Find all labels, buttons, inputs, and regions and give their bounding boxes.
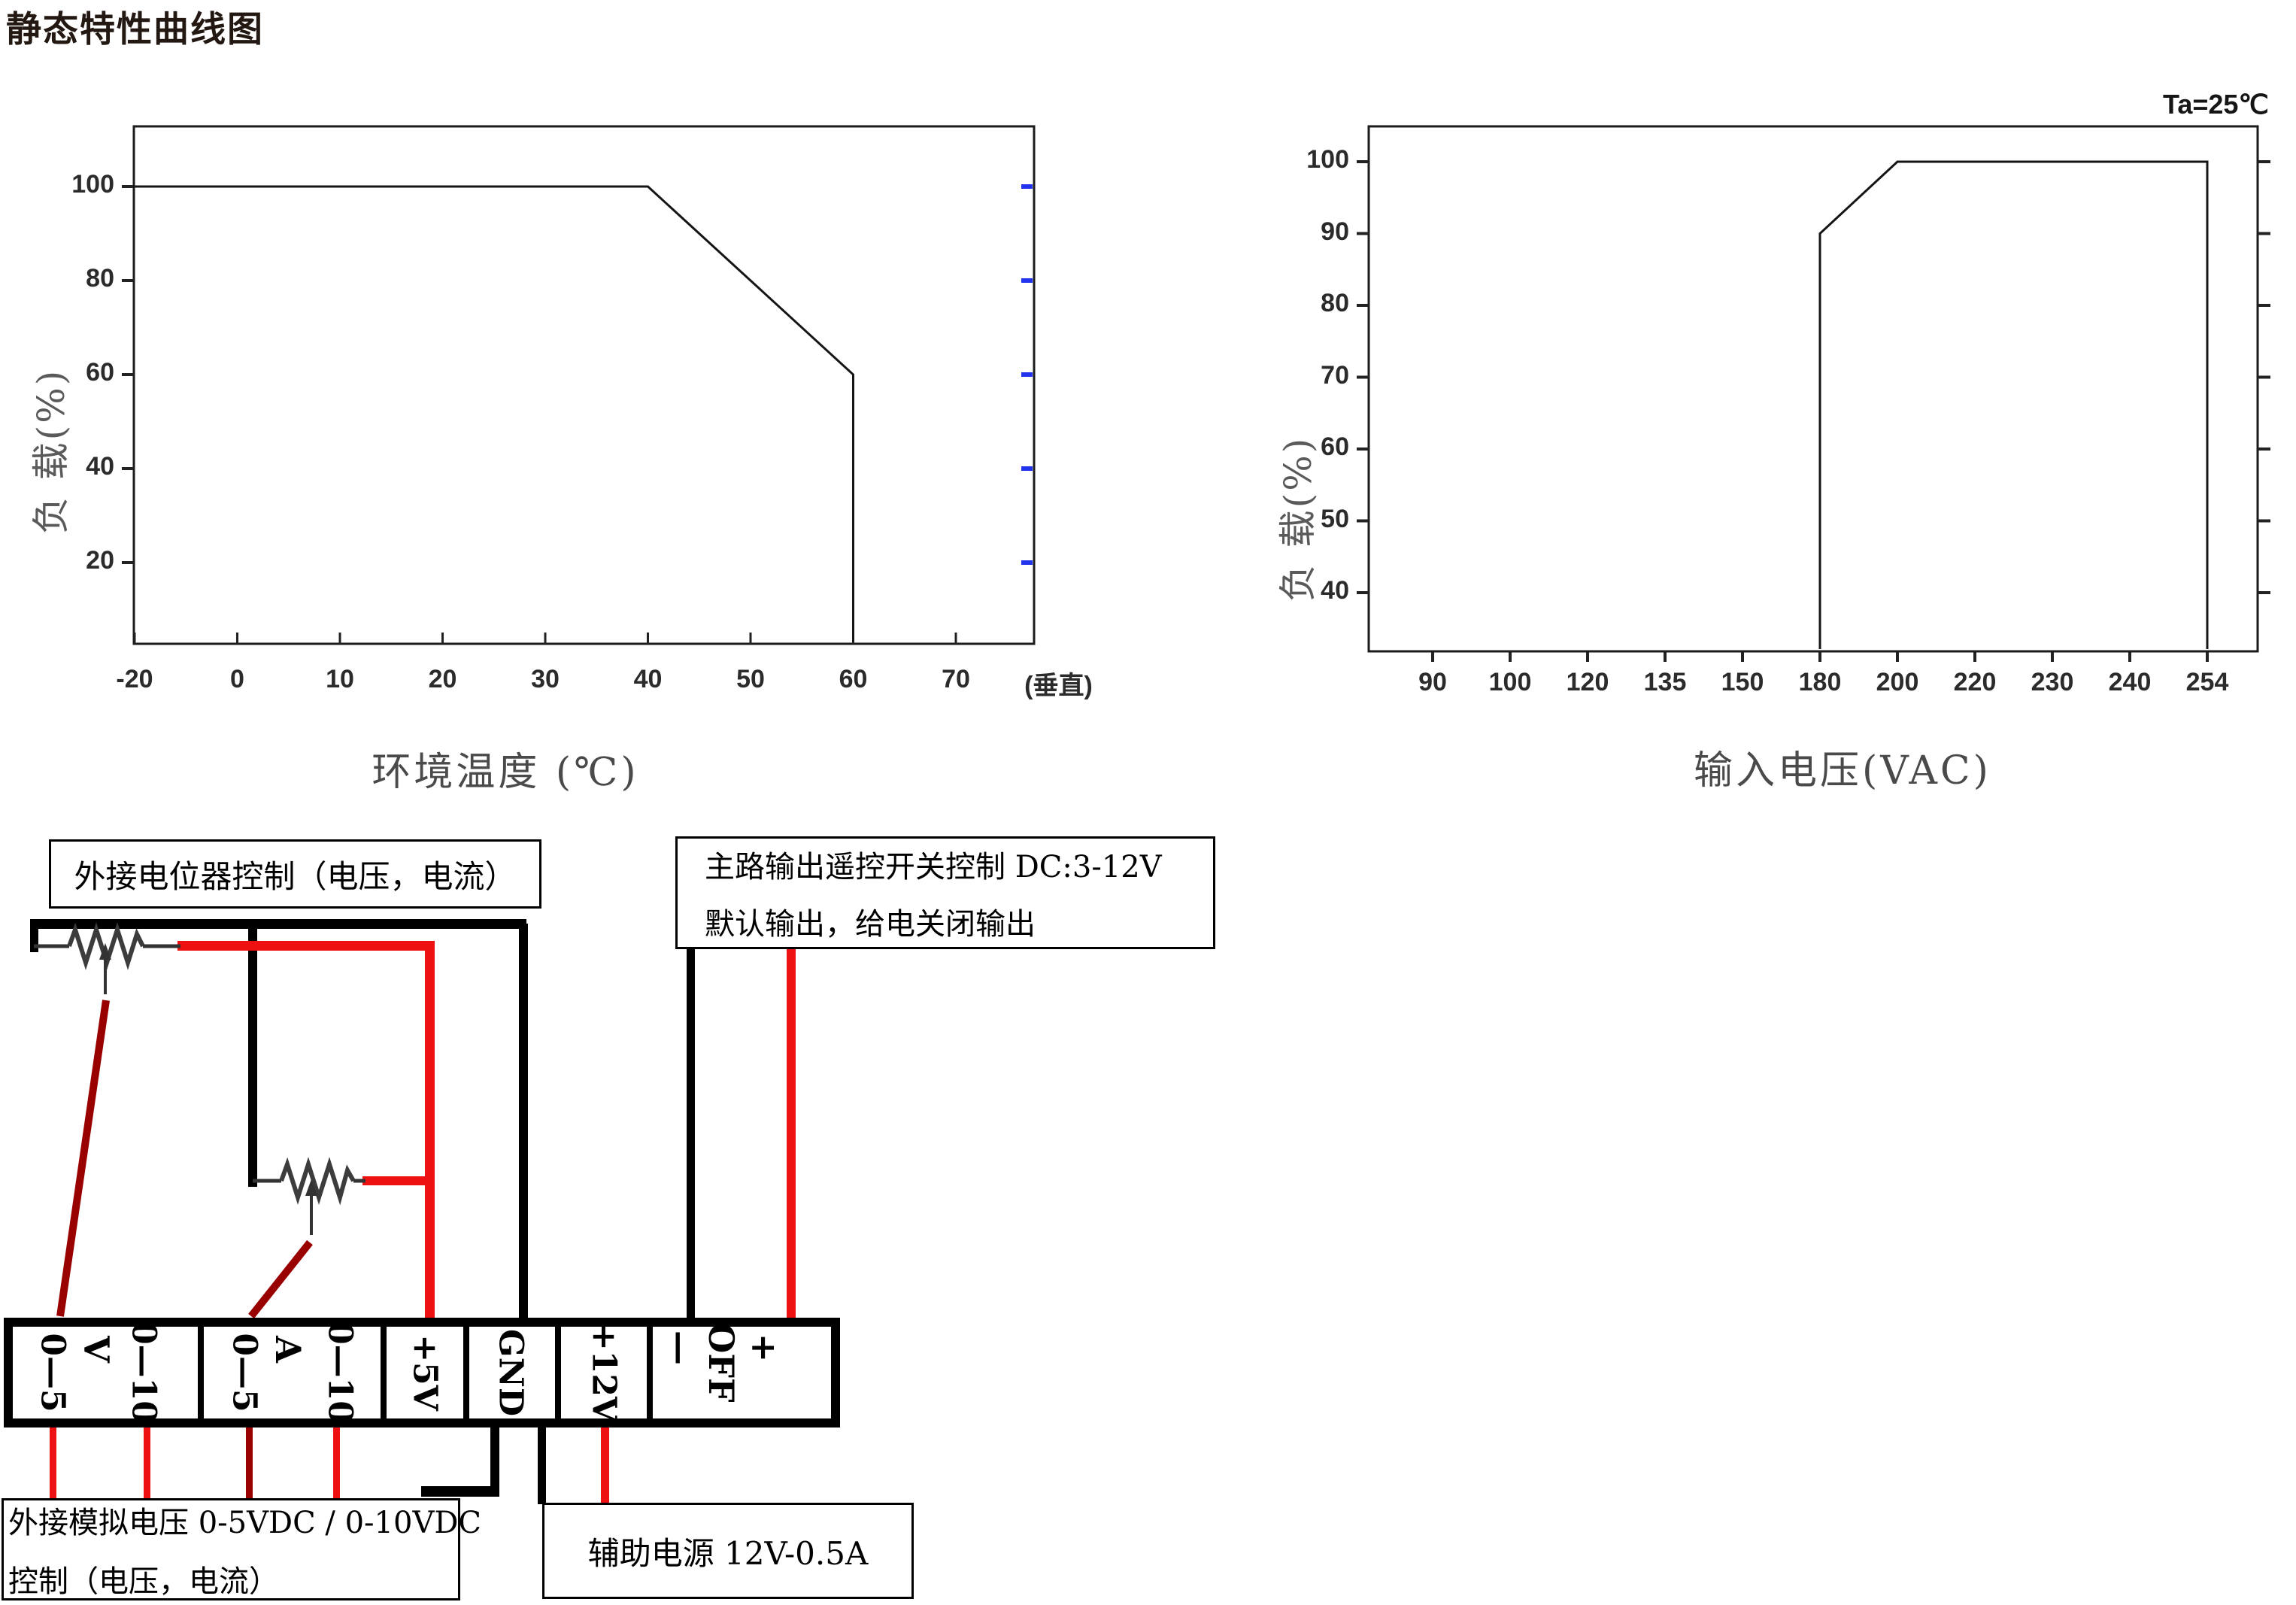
- y-tick-label: 80: [50, 264, 114, 293]
- callout-potentiometer-control: 外接电位器控制（电压，电流）: [49, 839, 541, 909]
- terminal-divider: [463, 1327, 469, 1418]
- terminal-group-label-a: A: [268, 1336, 308, 1363]
- y-tick-label: 90: [1284, 217, 1349, 247]
- gnd-elbow-stub: [421, 1486, 499, 1497]
- callout-analog-line2: 控制（电压，电流）: [8, 1557, 458, 1600]
- pot2-drop-wire: [248, 924, 257, 1187]
- x-tick-label: 0: [185, 665, 290, 694]
- chart2-x-axis-title: 输入电压(VAC): [1694, 739, 1991, 795]
- terminal-plus5v: +5V: [406, 1334, 444, 1411]
- terminal-group-label-v: V: [76, 1336, 117, 1363]
- terminal-group-voltage: 0—5 V 0—10: [13, 1327, 198, 1418]
- gnd-top-wire: [519, 924, 528, 1325]
- derating-curve-load-vs-ambient-temperature: [135, 187, 854, 642]
- terminal-0-5-current: 0—5: [226, 1333, 264, 1412]
- gnd-bottom-wire: [490, 1426, 499, 1495]
- x-tick-label: 40: [596, 665, 701, 694]
- pot2-red-wire: [362, 1176, 432, 1185]
- gnd-to-aux-wire: [538, 1426, 546, 1504]
- callout-aux-power: 辅助电源 12V-0.5A: [542, 1503, 914, 1599]
- callout-analog-voltage-control: 外接模拟电压 0-5VDC / 0-10VDC 控制（电压，电流）: [2, 1498, 460, 1600]
- datasheet-figure-page: 静态特性曲线图 环境温度 (℃) 负 载(%) 输入电压(VAC) 负 载(%)…: [0, 0, 2296, 1605]
- red-bus-to-5v-wire: [425, 941, 435, 1325]
- terminal-group-5v: +5V: [387, 1327, 463, 1418]
- x-tick-label: 60: [801, 665, 906, 694]
- analog-wire-0-5v: [50, 1426, 56, 1501]
- callout-analog-line1: 外接模拟电压 0-5VDC / 0-10VDC: [8, 1498, 458, 1542]
- page-title: 静态特性曲线图: [6, 0, 264, 52]
- terminal-divider: [647, 1327, 653, 1418]
- pot2-resistor-zigzag: [281, 1164, 353, 1197]
- analog-wire-0-5a: [246, 1426, 253, 1501]
- analog-wire-0-10a: [333, 1426, 340, 1501]
- terminal-0-5-voltage: 0—5: [34, 1333, 72, 1412]
- plot-border: [134, 126, 1034, 644]
- y-tick-label: 60: [50, 358, 114, 387]
- terminal-plus: +: [744, 1333, 784, 1363]
- y-tick-label: 70: [1284, 361, 1349, 390]
- remote-minus-wire: [687, 946, 695, 1322]
- terminal-gnd: GND: [492, 1329, 530, 1416]
- chart1-x-axis-title: 环境温度 (℃): [372, 740, 638, 796]
- x-tick-label: -20: [82, 665, 187, 694]
- x-tick-label: 70: [903, 665, 1008, 694]
- x-tick-label: 50: [698, 665, 803, 694]
- chart1-y-axis-title: 负 载(%): [21, 369, 75, 534]
- terminal-0-10-voltage: 0—10: [125, 1321, 163, 1424]
- callout-remote-switch-control: 主路输出遥控开关控制 DC:3-12V 默认输出，给电关闭输出: [675, 836, 1215, 949]
- x-tick-label: 254: [2155, 668, 2260, 697]
- terminal-divider: [198, 1327, 204, 1418]
- terminal-plus12v: +12V: [585, 1323, 623, 1422]
- analog-wire-0-10v: [144, 1426, 150, 1501]
- y-tick-label: 100: [1284, 145, 1349, 174]
- y-tick-label: 40: [50, 452, 114, 481]
- terminal-divider: [381, 1327, 387, 1418]
- y-tick-label: 40: [1284, 576, 1349, 605]
- callout-remote-line2: 默认输出，给电关闭输出: [705, 900, 1213, 943]
- callout-potentiometer-text: 外接电位器控制（电压，电流）: [74, 851, 516, 897]
- aux-12v-wire: [601, 1426, 609, 1504]
- derating-curve-load-vs-input-voltage: [1820, 162, 2207, 649]
- callout-remote-line1: 主路输出遥控开关控制 DC:3-12V: [705, 842, 1213, 886]
- y-tick-label: 60: [1284, 432, 1349, 462]
- terminal-group-remote-off: — OFF +: [653, 1327, 831, 1418]
- y-tick-label: 80: [1284, 289, 1349, 318]
- pot-bus-wire: [30, 919, 526, 929]
- terminal-block: 0—5 V 0—10 0—5 A 0—10 +5V GND +12V — OFF…: [4, 1318, 840, 1428]
- terminal-minus: —: [660, 1330, 701, 1365]
- y-tick-label: 20: [50, 546, 114, 575]
- terminal-group-current: 0—5 A 0—10: [204, 1327, 381, 1418]
- y-tick-label: 100: [50, 170, 114, 199]
- plot-border: [1369, 126, 2258, 651]
- terminal-off-label: OFF: [701, 1323, 742, 1402]
- x-tick-label: 10: [287, 665, 393, 694]
- x-tick-label: 30: [493, 665, 598, 694]
- terminal-divider: [555, 1327, 561, 1418]
- x-tick-label: 20: [390, 665, 496, 694]
- remote-plus-wire: [787, 946, 796, 1322]
- terminal-0-10-current: 0—10: [321, 1321, 359, 1424]
- callout-aux-text: 辅助电源 12V-0.5A: [588, 1528, 869, 1574]
- pot1-red-wire: [177, 941, 435, 951]
- terminal-group-gnd: GND: [469, 1327, 555, 1418]
- x-tick-label: (垂直): [1006, 665, 1112, 702]
- y-tick-label: 50: [1284, 505, 1349, 534]
- pot1-wiper-wire: [60, 1000, 106, 1316]
- terminal-group-12v: +12V: [561, 1327, 647, 1418]
- chart2-ta-annotation: Ta=25℃: [2163, 89, 2269, 120]
- pot2-wiper-wire: [251, 1242, 310, 1316]
